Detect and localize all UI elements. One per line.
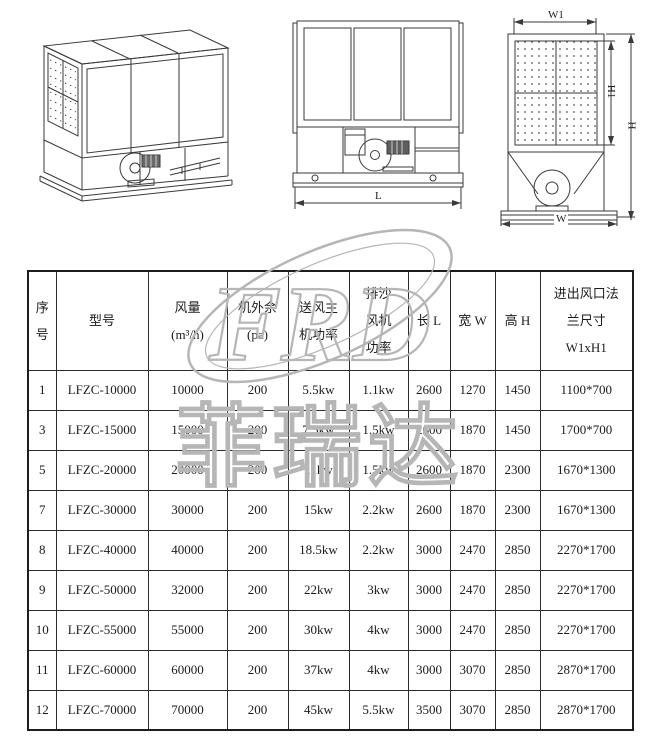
table-cell: 4kw — [349, 610, 408, 650]
table-cell: 200 — [227, 490, 288, 530]
header-cell: 型号 — [56, 271, 148, 370]
table-cell: 1 — [28, 370, 56, 410]
table-cell: 200 — [227, 690, 288, 730]
isometric-view-drawing — [30, 18, 235, 203]
spec-table: 序号型号风量(m³/h)机外余(pa)送风主机功率排沙风机功率长 L宽 W高 H… — [27, 270, 634, 731]
table-cell: LFZC-10000 — [56, 370, 148, 410]
table-cell: 1.5kw — [349, 450, 408, 490]
table-cell: 3000 — [408, 570, 450, 610]
table-cell: 200 — [227, 450, 288, 490]
side-view-svg — [488, 12, 640, 227]
table-row: 11LFZC-600006000020037kw4kw3000307028502… — [28, 650, 633, 690]
spec-sheet-page: L — [0, 0, 646, 741]
table-cell: 11 — [28, 650, 56, 690]
table-cell: 10000 — [148, 370, 227, 410]
table-cell: 55000 — [148, 610, 227, 650]
table-cell: 1450 — [495, 370, 540, 410]
table-cell: 2270*1700 — [540, 610, 633, 650]
spec-table-body: 1LFZC-10000100002005.5kw1.1kw26001270145… — [28, 370, 633, 730]
table-cell: 2850 — [495, 570, 540, 610]
table-row: 9LFZC-500003200020022kw3kw30002470285022… — [28, 570, 633, 610]
table-cell: 2870*1700 — [540, 690, 633, 730]
header-cell: 机外余(pa) — [227, 271, 288, 370]
table-cell: 45kw — [288, 690, 349, 730]
length-dim-label: L — [375, 191, 382, 202]
table-cell: 9 — [28, 570, 56, 610]
table-cell: 200 — [227, 530, 288, 570]
table-cell: 3000 — [408, 650, 450, 690]
table-cell: 200 — [227, 410, 288, 450]
table-cell: 3500 — [408, 690, 450, 730]
header-cell: 风量(m³/h) — [148, 271, 227, 370]
table-cell: 37kw — [288, 650, 349, 690]
table-cell: 200 — [227, 650, 288, 690]
table-cell: 2600 — [408, 410, 450, 450]
table-cell: LFZC-20000 — [56, 450, 148, 490]
table-cell: 1670*1300 — [540, 490, 633, 530]
table-cell: 1270 — [450, 370, 495, 410]
table-cell: 1870 — [450, 450, 495, 490]
table-cell: 30kw — [288, 610, 349, 650]
table-cell: 5.5kw — [349, 690, 408, 730]
table-cell: 15000 — [148, 410, 227, 450]
table-cell: 5.5kw — [288, 370, 349, 410]
table-cell: 2300 — [495, 490, 540, 530]
table-cell: 22kw — [288, 570, 349, 610]
table-cell: 2850 — [495, 690, 540, 730]
table-cell: 5 — [28, 450, 56, 490]
side-view-drawing: W1 H1 H W — [488, 12, 640, 227]
table-cell: 1100*700 — [540, 370, 633, 410]
table-cell: 11kw — [288, 450, 349, 490]
table-cell: 2270*1700 — [540, 530, 633, 570]
w-dim-label: W — [554, 214, 568, 225]
table-cell: 10 — [28, 610, 56, 650]
table-cell: 1450 — [495, 410, 540, 450]
table-row: 12LFZC-700007000020045kw5.5kw35003070285… — [28, 690, 633, 730]
isometric-view-svg — [30, 18, 235, 203]
table-row: 5LFZC-200002000020011kw1.5kw260018702300… — [28, 450, 633, 490]
table-cell: 15kw — [288, 490, 349, 530]
header-cell: 高 H — [495, 271, 540, 370]
table-cell: 18.5kw — [288, 530, 349, 570]
table-cell: 3000 — [408, 610, 450, 650]
table-cell: 1870 — [450, 490, 495, 530]
table-cell: 2270*1700 — [540, 570, 633, 610]
table-row: 7LFZC-300003000020015kw2.2kw260018702300… — [28, 490, 633, 530]
table-cell: 3 — [28, 410, 56, 450]
table-cell: 3kw — [349, 570, 408, 610]
table-cell: LFZC-70000 — [56, 690, 148, 730]
table-cell: 2600 — [408, 370, 450, 410]
table-cell: 2870*1700 — [540, 650, 633, 690]
spec-table-header: 序号型号风量(m³/h)机外余(pa)送风主机功率排沙风机功率长 L宽 W高 H… — [28, 271, 633, 370]
w1-dim-label: W1 — [548, 10, 564, 21]
table-cell: 70000 — [148, 690, 227, 730]
table-cell: 4kw — [349, 650, 408, 690]
table-cell: 1.5kw — [349, 410, 408, 450]
table-cell: 12 — [28, 690, 56, 730]
table-cell: 60000 — [148, 650, 227, 690]
table-cell: LFZC-40000 — [56, 530, 148, 570]
table-cell: 200 — [227, 610, 288, 650]
table-cell: 40000 — [148, 530, 227, 570]
table-cell: 7.5kw — [288, 410, 349, 450]
front-view-svg — [283, 15, 473, 217]
table-cell: 2600 — [408, 490, 450, 530]
table-cell: LFZC-50000 — [56, 570, 148, 610]
table-cell: 30000 — [148, 490, 227, 530]
table-cell: 1.1kw — [349, 370, 408, 410]
table-row: 10LFZC-550005500020030kw4kw3000247028502… — [28, 610, 633, 650]
table-cell: LFZC-30000 — [56, 490, 148, 530]
header-cell: 序号 — [28, 271, 56, 370]
table-cell: 32000 — [148, 570, 227, 610]
table-cell: 1700*700 — [540, 410, 633, 450]
table-cell: 2300 — [495, 450, 540, 490]
table-cell: 3070 — [450, 690, 495, 730]
header-cell: 长 L — [408, 271, 450, 370]
table-cell: 3070 — [450, 650, 495, 690]
table-cell: 2850 — [495, 530, 540, 570]
table-row: 8LFZC-400004000020018.5kw2.2kw3000247028… — [28, 530, 633, 570]
table-cell: 3000 — [408, 530, 450, 570]
table-cell: 200 — [227, 570, 288, 610]
table-cell: 20000 — [148, 450, 227, 490]
table-cell: 2470 — [450, 530, 495, 570]
table-row: 1LFZC-10000100002005.5kw1.1kw26001270145… — [28, 370, 633, 410]
table-cell: 2.2kw — [349, 490, 408, 530]
header-cell: 送风主机功率 — [288, 271, 349, 370]
front-view-drawing: L — [283, 15, 473, 217]
table-cell: 2470 — [450, 610, 495, 650]
table-cell: 2470 — [450, 570, 495, 610]
header-cell: 进出风口法兰尺寸W1xH1 — [540, 271, 633, 370]
table-row: 3LFZC-15000150002007.5kw1.5kw26001870145… — [28, 410, 633, 450]
table-cell: 2600 — [408, 450, 450, 490]
table-cell: 1670*1300 — [540, 450, 633, 490]
table-cell: 7 — [28, 490, 56, 530]
table-cell: LFZC-60000 — [56, 650, 148, 690]
table-cell: 200 — [227, 370, 288, 410]
table-cell: 1870 — [450, 410, 495, 450]
table-cell: LFZC-15000 — [56, 410, 148, 450]
header-cell: 宽 W — [450, 271, 495, 370]
table-cell: 2.2kw — [349, 530, 408, 570]
h-dim-label: H — [625, 122, 636, 130]
table-cell: LFZC-55000 — [56, 610, 148, 650]
table-cell: 2850 — [495, 650, 540, 690]
table-cell: 2850 — [495, 610, 540, 650]
table-cell: 8 — [28, 530, 56, 570]
header-row: 序号型号风量(m³/h)机外余(pa)送风主机功率排沙风机功率长 L宽 W高 H… — [28, 271, 633, 370]
h1-dim-label: H1 — [605, 85, 616, 98]
header-cell: 排沙风机功率 — [349, 271, 408, 370]
